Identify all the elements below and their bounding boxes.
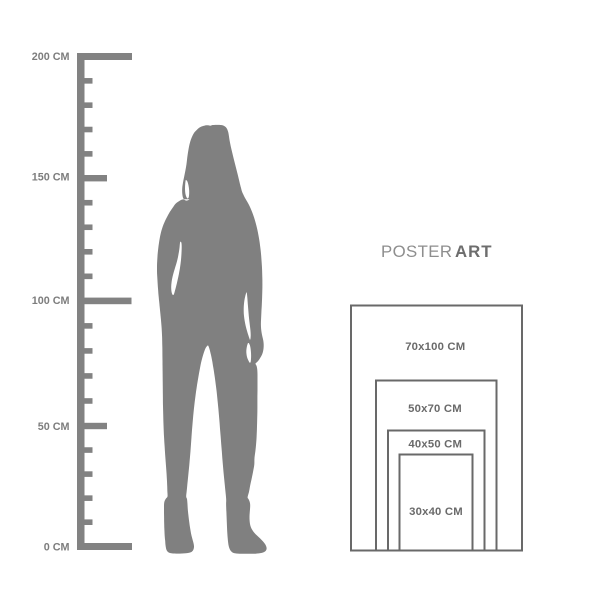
- svg-text:50x70 CM: 50x70 CM: [408, 403, 462, 415]
- svg-text:200 CM: 200 CM: [32, 51, 70, 63]
- svg-text:0 CM: 0 CM: [44, 542, 70, 554]
- svg-text:ART: ART: [455, 242, 493, 261]
- svg-text:150 CM: 150 CM: [32, 172, 70, 184]
- svg-text:POSTER: POSTER: [381, 242, 452, 261]
- svg-text:30x40 CM: 30x40 CM: [409, 506, 463, 518]
- svg-text:40x50 CM: 40x50 CM: [408, 438, 462, 450]
- svg-text:100 CM: 100 CM: [32, 295, 70, 307]
- svg-text:70x100 CM: 70x100 CM: [405, 341, 465, 353]
- svg-text:50 CM: 50 CM: [38, 421, 70, 433]
